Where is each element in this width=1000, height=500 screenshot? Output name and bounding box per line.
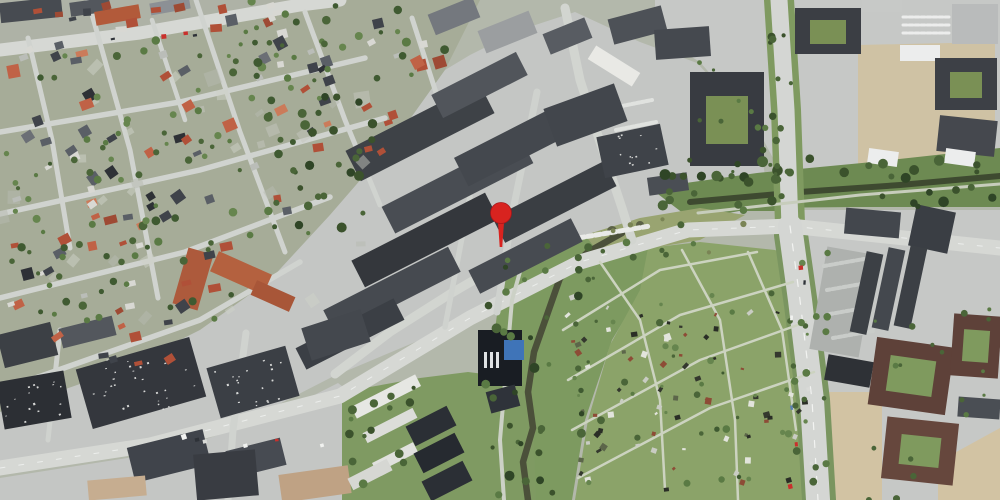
map-imagery xyxy=(0,0,1000,500)
map-canvas xyxy=(0,0,1000,500)
map-viewport[interactable] xyxy=(0,0,1000,500)
